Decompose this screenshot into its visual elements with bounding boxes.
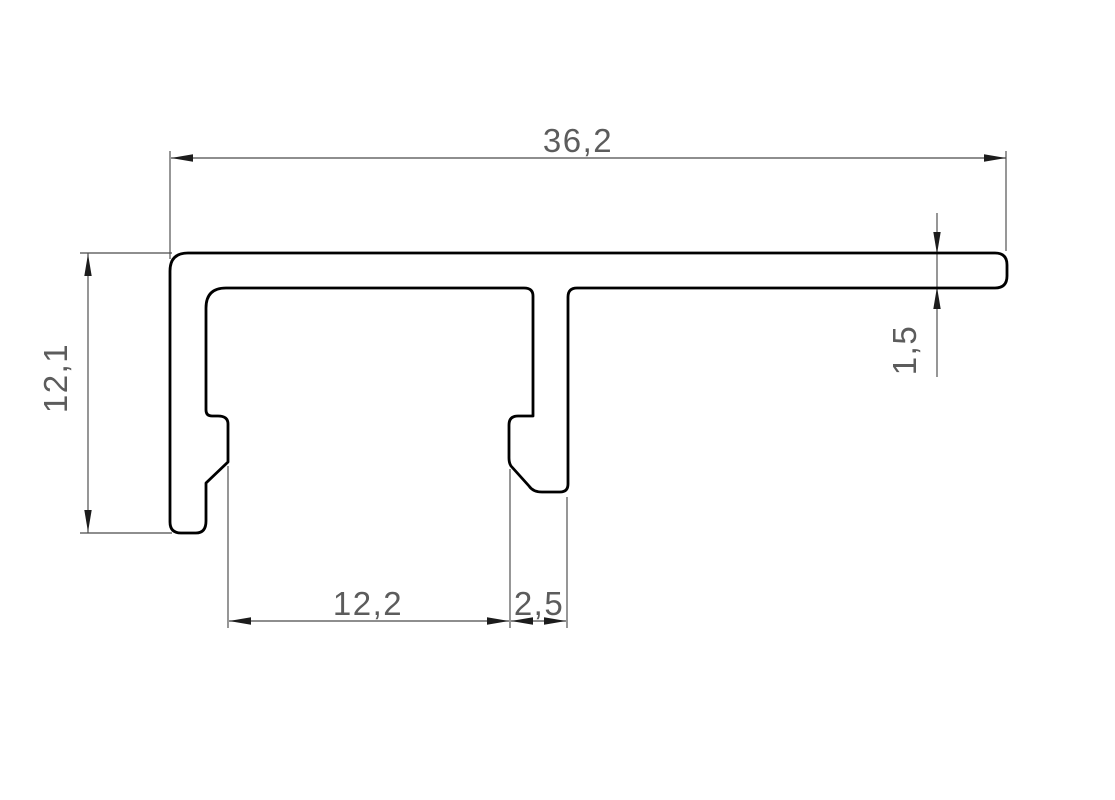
arrowhead-right	[487, 617, 509, 624]
cad-drawing: 36,2 12,1 12,2 2,5	[0, 0, 1115, 800]
dimension-opening-width: 12,2	[228, 466, 510, 628]
dimension-label-opening-width: 12,2	[333, 585, 403, 622]
arrowhead-up	[933, 287, 940, 309]
profile-outline	[170, 253, 1007, 533]
dimension-total-height: 12,1	[37, 253, 172, 533]
dimension-label-foot-width: 2,5	[514, 585, 564, 622]
dimension-label-wall-thickness: 1,5	[886, 325, 923, 375]
arrowhead-down	[933, 232, 940, 254]
dimension-label-total-height: 12,1	[37, 343, 74, 413]
dimension-wall-thickness: 1,5	[886, 213, 941, 377]
arrowhead-bottom	[84, 510, 91, 532]
arrowhead-left	[229, 617, 251, 624]
dimension-label-total-width: 36,2	[543, 122, 613, 159]
arrowhead-top	[84, 254, 91, 276]
drawing-canvas: 36,2 12,1 12,2 2,5	[0, 0, 1115, 800]
arrowhead-right	[984, 154, 1006, 161]
dimension-foot-width: 2,5	[511, 497, 567, 628]
arrowhead-left	[171, 154, 193, 161]
dimension-total-width: 36,2	[170, 122, 1006, 259]
